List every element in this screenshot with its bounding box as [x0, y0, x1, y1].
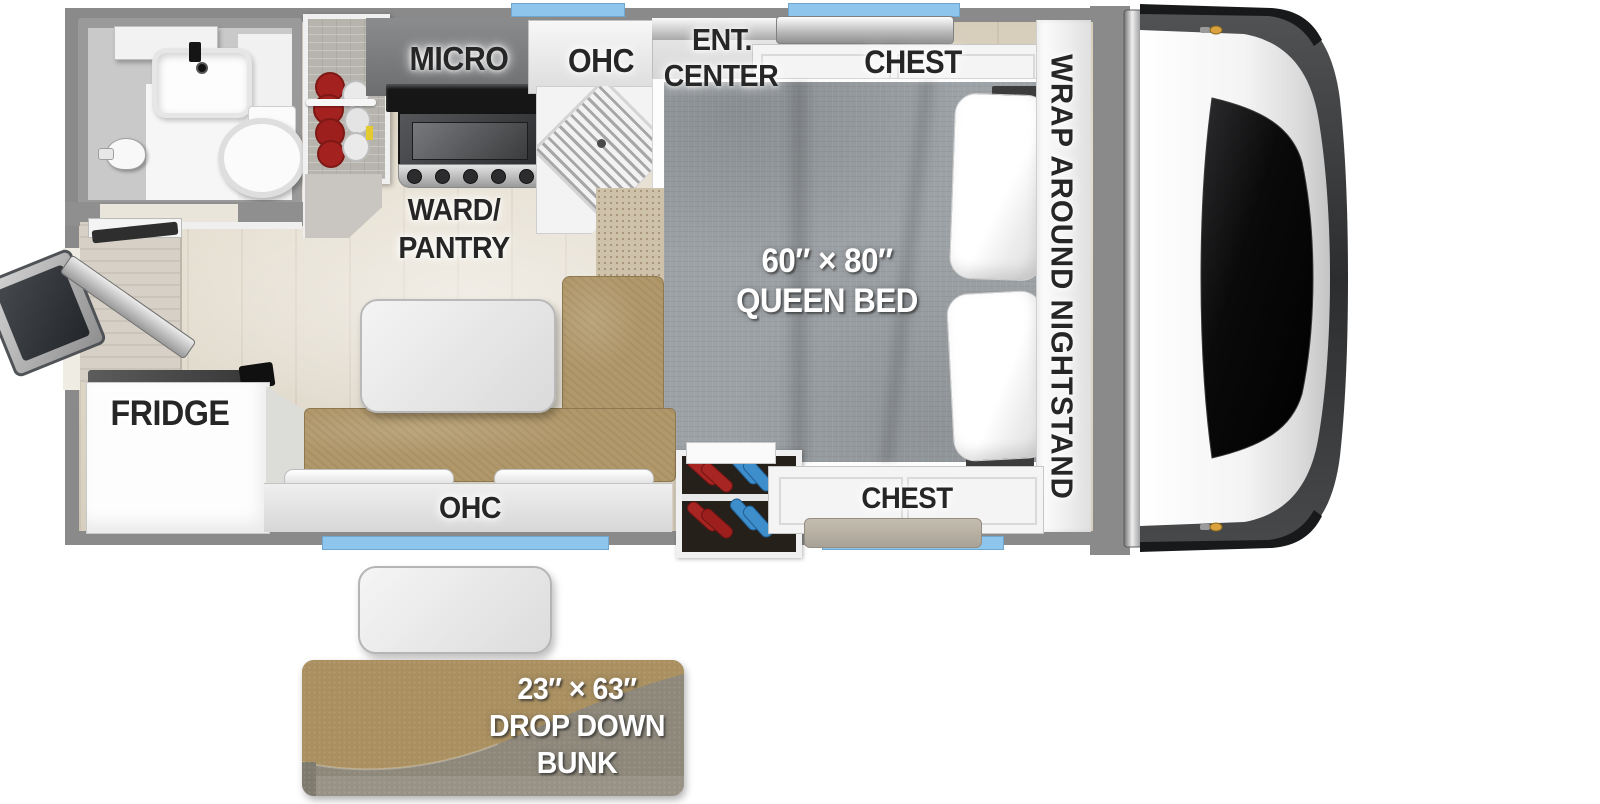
nightstand-label: WRAP AROUND NIGHTSTAND	[1045, 54, 1078, 500]
ent-center-label-line1: ENT.	[665, 24, 779, 57]
wardrobe-label-line1: WARD/	[386, 194, 522, 227]
dinette-table	[360, 299, 556, 413]
bunk-table	[358, 566, 552, 654]
range-knob-panel	[398, 164, 546, 188]
shoe-cabinet-lid	[686, 442, 776, 464]
bunk-label-line3: BUNK	[476, 747, 678, 780]
range-knob-5	[519, 169, 534, 184]
pantry-hanger-rod	[306, 99, 376, 106]
queen-bed-label-line2: QUEEN BED	[721, 284, 933, 320]
chest-top-label: CHEST	[844, 46, 982, 80]
toilet-icon	[218, 118, 306, 198]
queen-bed-label-line1: 60″ × 80″	[730, 244, 923, 280]
pillow-bottom	[946, 290, 1051, 463]
ohc-bottom-label: OHC	[422, 492, 518, 525]
range-vent-hood	[386, 84, 550, 112]
clearance-light-stem-top	[1200, 27, 1210, 33]
sink-drain-dot	[597, 139, 606, 148]
floorplan-canvas: MICRO OHC ENT. CENTER CHEST WRAP AROUND …	[0, 0, 1600, 804]
chest-bottom-label: CHEST	[842, 483, 973, 515]
bunk-label-line1: 23″ × 63″	[485, 673, 669, 706]
bedside-mat	[804, 518, 982, 548]
range-knob-1	[407, 169, 422, 184]
pillow-top	[949, 92, 1049, 281]
bunk-label-line2: DROP DOWN	[476, 710, 678, 743]
wardrobe-label-line2: PANTRY	[382, 232, 526, 265]
chest-top-rail	[776, 16, 954, 44]
pantry-garment-red-4	[317, 140, 345, 168]
sink-icon	[152, 48, 252, 118]
clearance-light-bottom	[1210, 523, 1222, 531]
clearance-light-stem-bottom	[1200, 524, 1210, 530]
microwave-window	[412, 122, 528, 160]
faucet-icon	[189, 42, 201, 62]
range-knob-3	[463, 169, 478, 184]
window-bottom-left	[322, 536, 609, 550]
truck-cab-front	[1096, 0, 1350, 557]
dinette-bench-side	[562, 276, 664, 422]
micro-label: MICRO	[390, 42, 528, 77]
ohc-top-label: OHC	[549, 44, 652, 79]
clearance-light-top	[1210, 26, 1222, 34]
shower-head-stem	[98, 148, 114, 160]
faucet-dot	[196, 62, 208, 74]
windshield-glass	[1201, 98, 1313, 458]
ent-center-label-line2: CENTER	[658, 60, 785, 93]
range-knob-2	[435, 169, 450, 184]
window-top-left	[511, 3, 625, 17]
camper-mount-rail	[1124, 10, 1142, 547]
pantry-clip-2	[366, 126, 373, 140]
range-knob-4	[491, 169, 506, 184]
microwave-oven-icon	[398, 112, 542, 172]
fridge-label: FRIDGE	[100, 396, 240, 433]
window-top-right	[788, 3, 960, 17]
